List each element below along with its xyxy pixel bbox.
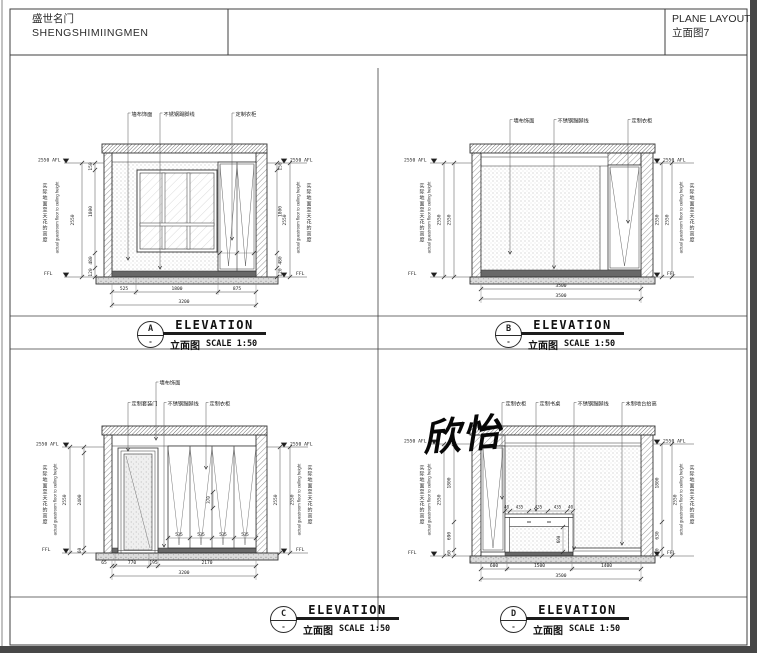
callout-label: 墙布饰面 (132, 110, 153, 118)
svg-text:120: 120 (88, 268, 94, 277)
svg-text:2550: 2550 (282, 214, 288, 225)
svg-text:150: 150 (88, 162, 94, 171)
watermark: 欣怡 (422, 400, 511, 463)
svg-text:535: 535 (241, 532, 249, 537)
svg-text:120: 120 (278, 268, 284, 277)
height-note-cn: 实际地面至天花的高度 (41, 183, 47, 243)
svg-text:435: 435 (535, 505, 543, 510)
svg-text:FFL: FFL (44, 271, 53, 277)
raised-platform (573, 548, 641, 556)
view-bubble-c: C - (270, 606, 297, 633)
svg-text:600: 600 (556, 535, 561, 543)
floor-slab (96, 277, 278, 284)
project-name-cn: 盛世名门 (32, 13, 74, 26)
view-bubble-d: D - (500, 606, 527, 633)
elevation-c: 2550 AFL 2550 AFL FFL FFL 2400 60 2550 2… (36, 379, 313, 581)
svg-text:2550: 2550 (447, 214, 453, 225)
elevation-b-structure (470, 144, 655, 284)
svg-text:定制衣柜: 定制衣柜 (632, 117, 653, 125)
svg-text:1800: 1800 (171, 286, 182, 292)
svg-text:535: 535 (219, 532, 227, 537)
elevation-c-structure (96, 426, 278, 560)
svg-text:墙布饰面: 墙布饰面 (514, 117, 535, 125)
title-underline (163, 332, 266, 335)
drawing-sheet: 2550 AFL 2550 AFL FFL FFL 150 1800 480 1… (0, 0, 757, 653)
svg-text:FFL: FFL (667, 271, 676, 277)
skirting (112, 271, 256, 277)
svg-text:600: 600 (490, 563, 499, 569)
bubble-divider (137, 335, 164, 336)
view-bubble-b: B - (495, 321, 522, 348)
svg-text:不锈钢踢脚线: 不锈钢踢脚线 (164, 110, 195, 118)
svg-text:150: 150 (278, 162, 284, 171)
svg-text:定制套装门: 定制套装门 (132, 400, 158, 408)
svg-text:525: 525 (120, 286, 129, 292)
mirror-window (137, 170, 217, 252)
svg-text:2550 AFL: 2550 AFL (663, 439, 686, 445)
svg-text:535: 535 (175, 532, 183, 537)
view-title-b: ELEVATION (521, 318, 624, 332)
svg-text:FFL: FFL (296, 547, 305, 553)
view-bubble-a: A - (137, 321, 164, 348)
scan-edge-bottom (0, 646, 757, 653)
svg-text:60: 60 (77, 548, 83, 554)
elevation-a: 2550 AFL 2550 AFL FFL FFL 150 1800 480 1… (38, 110, 313, 308)
svg-text:3200: 3200 (178, 570, 189, 576)
svg-text:2550: 2550 (62, 494, 68, 505)
svg-text:40: 40 (504, 505, 509, 510)
svg-text:1400: 1400 (601, 563, 612, 569)
svg-text:2550: 2550 (437, 214, 443, 225)
sheet-subtitle: 立面图7 (672, 27, 709, 40)
svg-text:2550 AFL: 2550 AFL (290, 158, 313, 164)
svg-text:FFL: FFL (667, 550, 676, 556)
view-title-d: ELEVATION (526, 603, 629, 617)
svg-text:120: 120 (655, 548, 661, 557)
svg-text:1500: 1500 (534, 563, 545, 569)
wardrobe-door (608, 165, 641, 270)
fabric-wall (481, 166, 600, 270)
cad-linework: 2550 AFL 2550 AFL FFL FFL 150 1800 480 1… (0, 0, 757, 653)
svg-text:370: 370 (206, 496, 211, 504)
svg-text:定制衣柜: 定制衣柜 (210, 400, 231, 408)
svg-text:535: 535 (197, 532, 205, 537)
svg-text:2550 AFL: 2550 AFL (663, 158, 686, 164)
svg-text:2550: 2550 (655, 214, 661, 225)
svg-text:690: 690 (447, 532, 453, 541)
floor-slab (470, 277, 655, 284)
svg-text:FFL: FFL (42, 547, 51, 553)
svg-text:60: 60 (447, 550, 453, 556)
svg-text:2550: 2550 (437, 494, 443, 505)
svg-text:不锈钢踢脚线: 不锈钢踢脚线 (558, 117, 589, 125)
svg-text:木制地台抬高: 木制地台抬高 (626, 400, 657, 408)
scan-edge-right (750, 0, 757, 653)
elevation-a-structure (96, 144, 278, 284)
svg-text:2400: 2400 (77, 494, 83, 505)
svg-text:40: 40 (568, 505, 573, 510)
svg-text:不锈钢踢脚线: 不锈钢踢脚线 (578, 400, 609, 408)
svg-text:3500: 3500 (555, 293, 566, 299)
project-name-en: SHENGSHIMIINGMEN (32, 27, 149, 40)
height-note-en: actual guestroom floor to ceiling height (55, 170, 60, 266)
level-marker (63, 159, 69, 163)
svg-text:2550: 2550 (70, 214, 76, 225)
svg-text:2550: 2550 (290, 494, 296, 505)
svg-text:3200: 3200 (178, 299, 189, 305)
svg-text:1800: 1800 (88, 206, 94, 217)
floor-slab (96, 553, 278, 560)
svg-text:2550 AFL: 2550 AFL (36, 442, 59, 448)
svg-text:FFL: FFL (296, 271, 305, 277)
svg-text:3500: 3500 (555, 573, 566, 579)
svg-text:不锈钢踢脚线: 不锈钢踢脚线 (168, 400, 199, 408)
skirting (481, 270, 641, 277)
wardrobe-door (481, 446, 505, 552)
svg-text:2550: 2550 (665, 214, 671, 225)
svg-text:770: 770 (128, 560, 137, 566)
svg-text:480: 480 (278, 256, 284, 265)
svg-text:2550: 2550 (273, 494, 279, 505)
svg-text:65: 65 (101, 560, 107, 566)
view-title-c: ELEVATION (296, 603, 399, 617)
svg-text:3500: 3500 (555, 283, 566, 289)
svg-text:2550 AFL: 2550 AFL (404, 158, 427, 164)
svg-text:FFL: FFL (408, 550, 417, 556)
svg-text:875: 875 (233, 286, 242, 292)
svg-text:630: 630 (655, 531, 661, 540)
svg-text:FFL: FFL (408, 271, 417, 277)
sheet-title: PLANE LAYOUT (672, 13, 751, 26)
svg-text:435: 435 (516, 505, 524, 510)
svg-text:2550 AFL: 2550 AFL (290, 442, 313, 448)
svg-text:195: 195 (149, 560, 158, 566)
svg-text:2170: 2170 (201, 560, 212, 566)
view-title-a: ELEVATION (163, 318, 266, 332)
svg-text:480: 480 (88, 256, 94, 265)
svg-text:435: 435 (554, 505, 562, 510)
svg-text:1800: 1800 (655, 477, 661, 488)
svg-text:墙布饰面: 墙布饰面 (160, 379, 181, 387)
level-label: 2550 AFL (38, 158, 61, 164)
svg-text:定制书桌: 定制书桌 (540, 400, 561, 408)
svg-text:1800: 1800 (447, 477, 453, 488)
wardrobe-doors (218, 162, 256, 271)
floor-slab (470, 556, 655, 563)
svg-text:定制衣柜: 定制衣柜 (236, 110, 257, 118)
elevation-b: 2550 AFL 2550 AFL FFL FFL 2550 2550 2550… (404, 117, 694, 304)
entry-door (118, 448, 158, 553)
svg-text:2550 AFL: 2550 AFL (404, 439, 427, 445)
